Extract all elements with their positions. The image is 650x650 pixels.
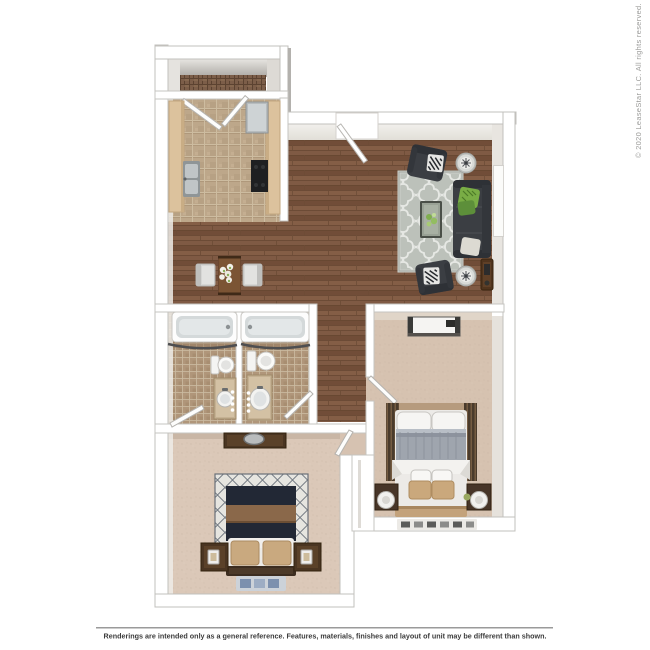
svg-text:Renderings are intended only a: Renderings are intended only as a genera… — [104, 632, 547, 641]
svg-text:© 2020 LeaseStar LLC. All righ: © 2020 LeaseStar LLC. All rights reserve… — [634, 3, 643, 158]
